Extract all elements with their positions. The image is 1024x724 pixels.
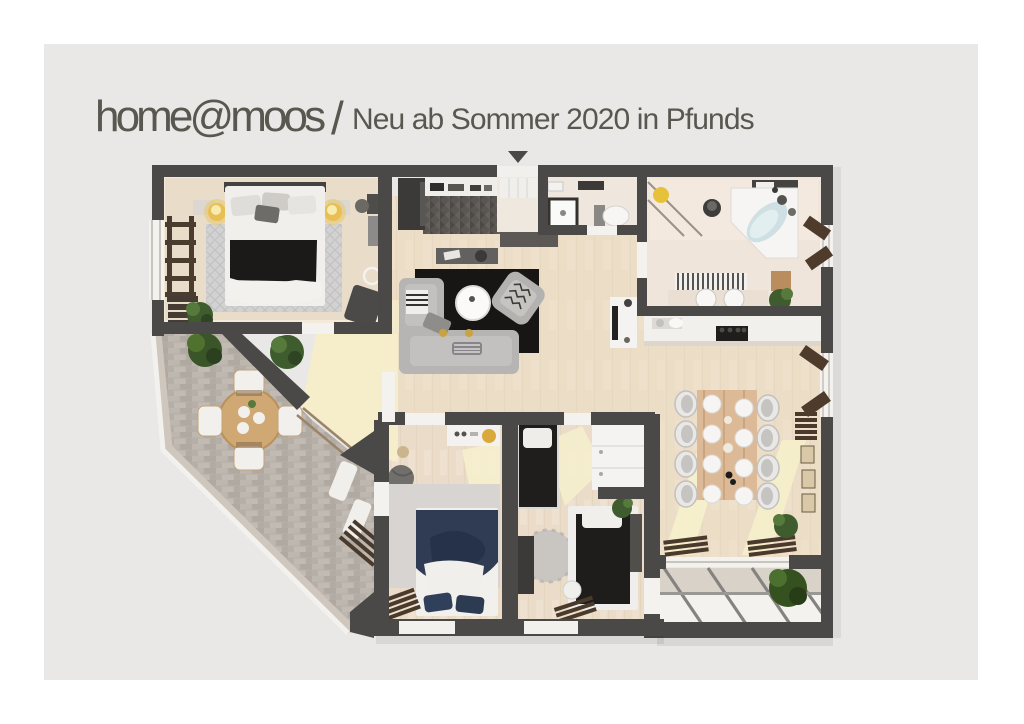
- svg-text:/: /: [331, 92, 344, 144]
- svg-text:Neu ab Sommer 2020 in Pfunds: Neu ab Sommer 2020 in Pfunds: [352, 103, 754, 136]
- svg-text:home@moos: home@moos: [95, 92, 325, 141]
